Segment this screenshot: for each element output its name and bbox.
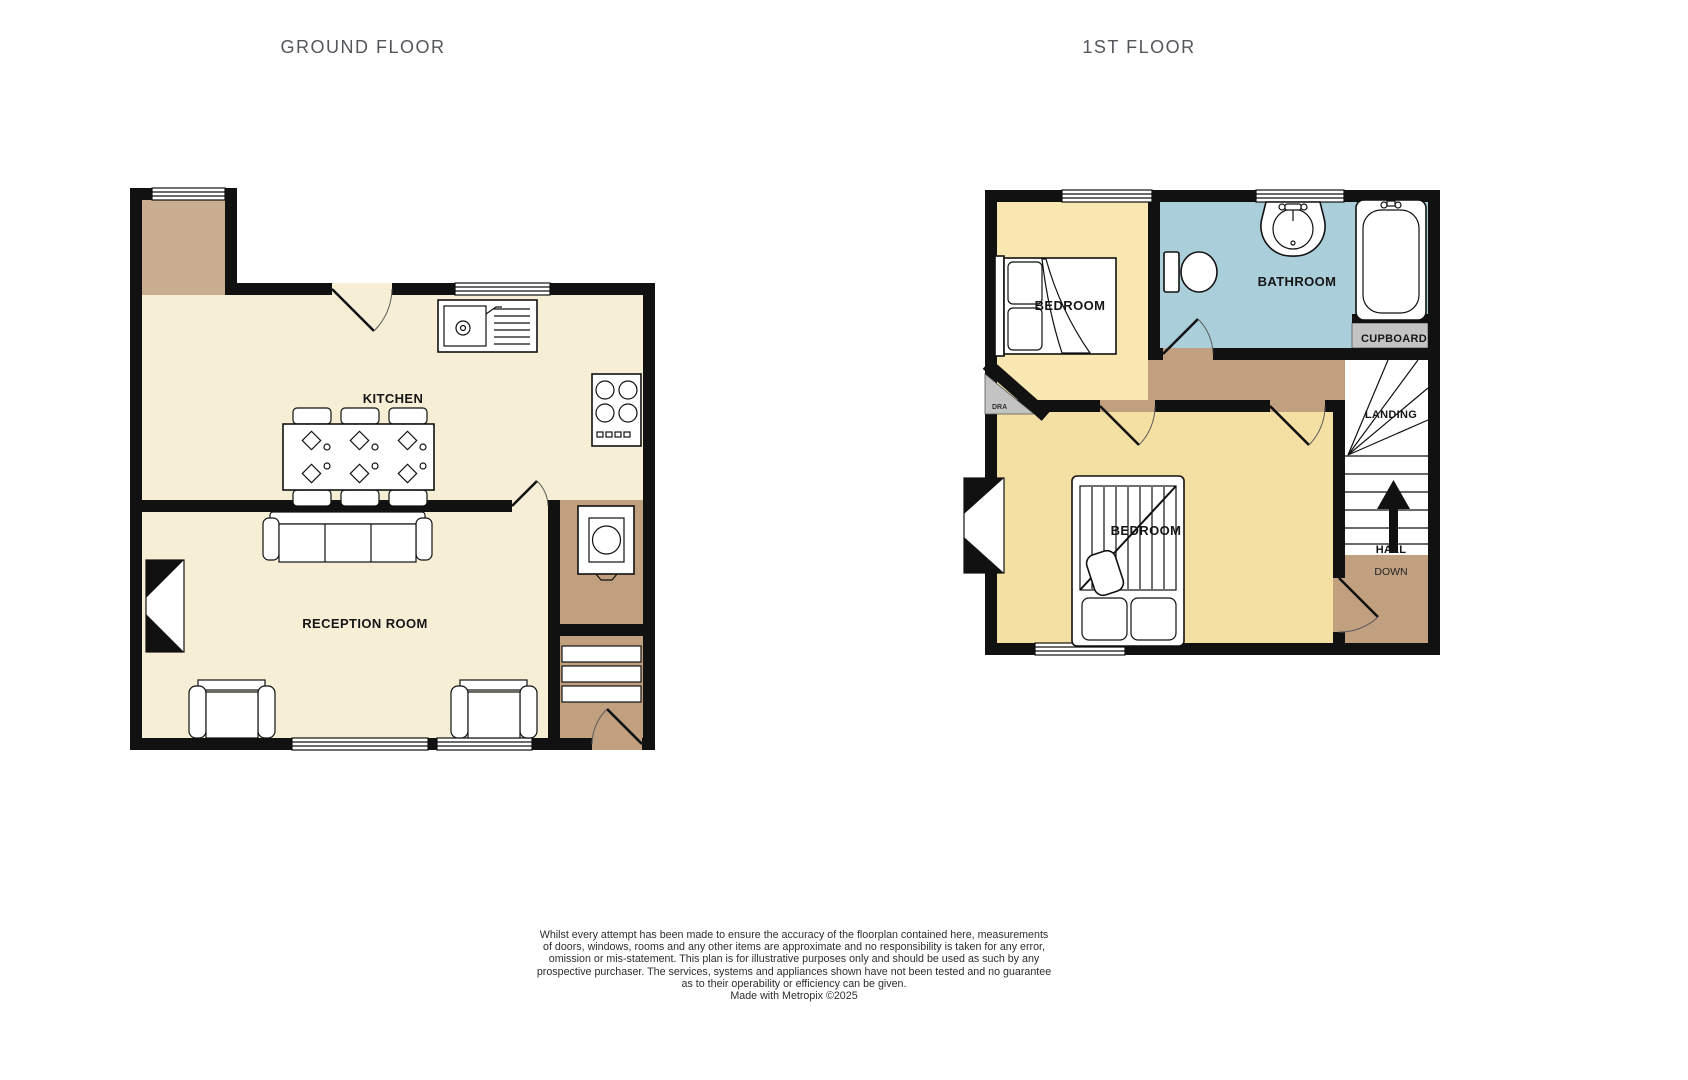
landing-corridor-floor	[1148, 360, 1345, 400]
window-icon	[1062, 190, 1152, 202]
cupboard-label: CUPBOARD	[1361, 333, 1427, 345]
disclaimer-line: of doors, windows, rooms and any other i…	[444, 941, 1144, 953]
dining-table-icon	[283, 408, 434, 506]
disclaimer-line: omission or mis-statement. This plan is …	[444, 953, 1144, 965]
armchair-icon	[451, 680, 537, 738]
metropix-credit: Made with Metropix ©2025	[444, 990, 1144, 1002]
disclaimer-line: as to their operability or efficiency ca…	[444, 978, 1144, 990]
hall-door-gap	[1333, 578, 1345, 632]
sink-drainer-icon	[438, 300, 537, 352]
disclaimer-line: prospective purchaser. The services, sys…	[444, 966, 1144, 978]
window-icon	[455, 283, 550, 295]
bedroom-back-door-gap	[1270, 400, 1325, 412]
basin-icon	[1261, 202, 1325, 256]
armchair-icon	[189, 680, 275, 738]
toilet-icon	[1164, 252, 1217, 292]
kitchen-top-door-gap	[332, 283, 392, 295]
bathroom-door-gap	[1163, 348, 1213, 360]
stairwell-floor	[1345, 360, 1428, 555]
bedroom-front-label: BEDROOM	[1035, 298, 1106, 313]
bedroom-back-label: BEDROOM	[1111, 523, 1182, 538]
window-icon	[152, 188, 225, 200]
bathroom-label: BATHROOM	[1258, 274, 1337, 289]
porch-floor	[142, 200, 225, 295]
bedroom-front-door-gap	[1100, 400, 1155, 412]
washing-machine-icon	[578, 506, 634, 580]
bay-window-icon	[964, 478, 1004, 573]
disclaimer: Whilst every attempt has been made to en…	[444, 929, 1144, 1002]
hall-label: HALL	[1376, 544, 1407, 556]
window-icon	[292, 738, 428, 750]
hob-icon	[592, 374, 641, 446]
floorplan-drawing: KITCHEN RECEPTION ROOM	[0, 0, 1688, 1080]
disclaimer-line: Whilst every attempt has been made to en…	[444, 929, 1144, 941]
sofa-icon	[263, 512, 432, 562]
double-bed-icon	[1072, 476, 1184, 646]
window-icon	[437, 738, 532, 750]
staircase-icon	[562, 646, 641, 702]
bathtub-icon	[1356, 200, 1426, 320]
ground-floor-plan: KITCHEN RECEPTION ROOM	[130, 188, 655, 750]
bay-window-icon	[146, 560, 184, 652]
window-icon	[1256, 190, 1344, 202]
kitchen-label: KITCHEN	[363, 391, 424, 406]
down-label: DOWN	[1374, 566, 1407, 578]
reception-room-label: RECEPTION ROOM	[302, 616, 428, 631]
landing-label: LANDING	[1365, 409, 1417, 421]
front-door-gap	[592, 738, 642, 750]
first-floor-plan: DRA	[964, 190, 1440, 655]
wardrobe-label: DRA	[992, 404, 1007, 411]
